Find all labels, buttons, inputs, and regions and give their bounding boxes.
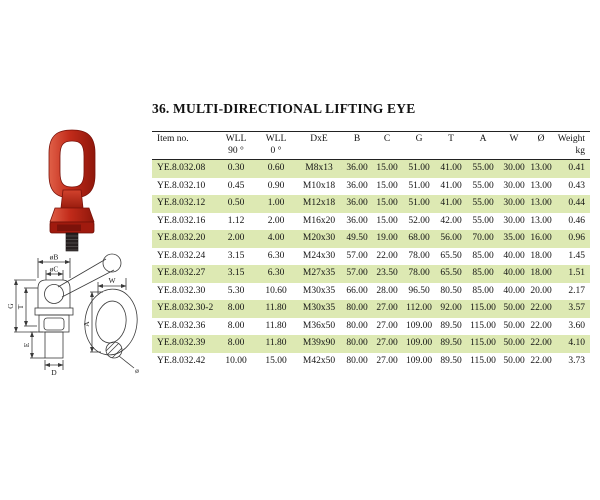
- cell-t: 80.50: [436, 283, 466, 301]
- col-header-a: A: [466, 132, 500, 160]
- table-row: YE.8.032.273.156.30M27x3557.0023.5078.00…: [152, 265, 590, 283]
- cell-c: 27.00: [372, 318, 402, 336]
- table-row: YE.8.032.4210.0015.00M42x5080.0027.00109…: [152, 353, 590, 371]
- cell-wll-90: 8.00: [216, 335, 256, 353]
- cell-t: 92.00: [436, 300, 466, 318]
- cell-b: 36.00: [342, 178, 372, 196]
- cell-dxe: M20x30: [296, 230, 342, 248]
- dim-label-w: W: [108, 276, 116, 285]
- cell-wll-90: 1.12: [216, 213, 256, 231]
- cell-w: 30.00: [500, 178, 528, 196]
- cell-weight: 0.44: [554, 195, 590, 213]
- cell-w: 30.00: [500, 195, 528, 213]
- flange: [35, 308, 73, 315]
- pivot-circle: [45, 285, 64, 304]
- cell-wll-90: 2.00: [216, 230, 256, 248]
- cell-t: 89.50: [436, 318, 466, 336]
- cell-wll-90: 3.15: [216, 265, 256, 283]
- bolt-shank: [45, 332, 63, 358]
- cell-wll-0: 6.30: [256, 248, 296, 266]
- col-header-g: G: [402, 132, 436, 160]
- cell-wll-90: 10.00: [216, 353, 256, 371]
- col-header-item-no: Item no.: [152, 132, 216, 160]
- cell-a: 55.00: [466, 160, 500, 178]
- cell-b: 57.00: [342, 248, 372, 266]
- cell-a: 55.00: [466, 178, 500, 196]
- cell-g: 112.00: [402, 300, 436, 318]
- cell-t: 65.50: [436, 248, 466, 266]
- ring-inner: [93, 299, 129, 345]
- cell-item-no: YE.8.032.24: [152, 248, 216, 266]
- cell-t: 42.00: [436, 213, 466, 231]
- cell-b: 36.00: [342, 195, 372, 213]
- cell-dxe: M42x50: [296, 353, 342, 371]
- lifting-ring: [49, 130, 95, 198]
- cell-a: 85.00: [466, 283, 500, 301]
- table-row: YE.8.032.100.450.90M10x1836.0015.0051.00…: [152, 178, 590, 196]
- cell-t: 41.00: [436, 195, 466, 213]
- cell-w: 50.00: [500, 353, 528, 371]
- cell-dia: 18.00: [528, 248, 554, 266]
- dimension-drawing: øB øC G T E D W A ø: [8, 250, 158, 398]
- cell-dia: 13.00: [528, 178, 554, 196]
- cell-item-no: YE.8.032.27: [152, 265, 216, 283]
- cell-weight: 0.41: [554, 160, 590, 178]
- col-header-weight: Weightkg: [554, 132, 590, 160]
- cell-weight: 0.96: [554, 230, 590, 248]
- cell-c: 23.50: [372, 265, 402, 283]
- cell-t: 89.50: [436, 335, 466, 353]
- cell-wll-0: 11.80: [256, 318, 296, 336]
- cell-w: 50.00: [500, 335, 528, 353]
- cell-dia: 20.00: [528, 283, 554, 301]
- cell-wll-0: 11.80: [256, 300, 296, 318]
- cell-dia: 13.00: [528, 160, 554, 178]
- cell-weight: 0.46: [554, 213, 590, 231]
- cell-b: 80.00: [342, 300, 372, 318]
- cell-item-no: YE.8.032.30: [152, 283, 216, 301]
- cell-wll-0: 10.60: [256, 283, 296, 301]
- spec-table-container: Item no.WLL90 °WLL0 °DxEBCGTAWØWeightkg …: [152, 131, 590, 370]
- cell-dxe: M36x50: [296, 318, 342, 336]
- dim-label-g: G: [8, 303, 15, 309]
- cell-item-no: YE.8.032.10: [152, 178, 216, 196]
- dim-label-d: D: [51, 368, 57, 377]
- table-row: YE.8.032.202.004.00M20x3049.5019.0068.00…: [152, 230, 590, 248]
- table-row: YE.8.032.398.0011.80M39x9080.0027.00109.…: [152, 335, 590, 353]
- cell-dxe: M24x30: [296, 248, 342, 266]
- cell-dxe: M27x35: [296, 265, 342, 283]
- cell-w: 50.00: [500, 300, 528, 318]
- cell-weight: 2.17: [554, 283, 590, 301]
- cell-c: 27.00: [372, 335, 402, 353]
- cell-b: 36.00: [342, 160, 372, 178]
- product-photo: [36, 120, 141, 252]
- cell-w: 30.00: [500, 160, 528, 178]
- cell-weight: 1.45: [554, 248, 590, 266]
- cell-a: 85.00: [466, 265, 500, 283]
- cell-b: 80.00: [342, 353, 372, 371]
- cell-item-no: YE.8.032.16: [152, 213, 216, 231]
- cell-t: 41.00: [436, 160, 466, 178]
- cell-b: 49.50: [342, 230, 372, 248]
- cell-wll-90: 8.00: [216, 300, 256, 318]
- cell-w: 30.00: [500, 213, 528, 231]
- cell-a: 55.00: [466, 195, 500, 213]
- lever-edge-top: [58, 259, 106, 287]
- cell-t: 56.00: [436, 230, 466, 248]
- cell-w: 35.00: [500, 230, 528, 248]
- cell-t: 89.50: [436, 353, 466, 371]
- cell-wll-90: 8.00: [216, 318, 256, 336]
- cell-dxe: M12x18: [296, 195, 342, 213]
- cell-b: 80.00: [342, 335, 372, 353]
- dia-leader-line: [119, 356, 134, 368]
- cell-wll-90: 0.30: [216, 160, 256, 178]
- col-header-dxe: DxE: [296, 132, 342, 160]
- cell-weight: 0.43: [554, 178, 590, 196]
- cell-item-no: YE.8.032.20: [152, 230, 216, 248]
- cell-a: 115.00: [466, 300, 500, 318]
- cell-a: 115.00: [466, 353, 500, 371]
- table-row: YE.8.032.305.3010.60M30x3566.0028.0096.5…: [152, 283, 590, 301]
- cell-a: 70.00: [466, 230, 500, 248]
- cell-b: 57.00: [342, 265, 372, 283]
- cell-g: 109.00: [402, 353, 436, 371]
- cell-w: 40.00: [500, 283, 528, 301]
- cell-dia: 22.00: [528, 300, 554, 318]
- cell-b: 80.00: [342, 318, 372, 336]
- cell-weight: 4.10: [554, 335, 590, 353]
- cell-dxe: M30x35: [296, 283, 342, 301]
- cell-weight: 1.51: [554, 265, 590, 283]
- body: [39, 315, 69, 332]
- page-title: 36. MULTI-DIRECTIONAL LIFTING EYE: [152, 101, 415, 117]
- cell-item-no: YE.8.032.39: [152, 335, 216, 353]
- table-row: YE.8.032.120.501.00M12x1836.0015.0051.00…: [152, 195, 590, 213]
- cell-wll-90: 0.50: [216, 195, 256, 213]
- cell-dxe: M8x13: [296, 160, 342, 178]
- cell-c: 27.00: [372, 353, 402, 371]
- cell-dia: 13.00: [528, 195, 554, 213]
- col-header-wll-0: WLL0 °: [256, 132, 296, 160]
- body-window: [44, 318, 64, 330]
- dim-label-e: E: [22, 342, 31, 347]
- cell-item-no: YE.8.032.42: [152, 353, 216, 371]
- cell-g: 68.00: [402, 230, 436, 248]
- base-label-plate: [57, 225, 81, 232]
- cell-dxe: M30x35: [296, 300, 342, 318]
- cell-b: 66.00: [342, 283, 372, 301]
- cell-g: 109.00: [402, 335, 436, 353]
- cell-g: 96.50: [402, 283, 436, 301]
- cell-c: 28.00: [372, 283, 402, 301]
- col-header-dia: Ø: [528, 132, 554, 160]
- cell-wll-0: 11.80: [256, 335, 296, 353]
- spec-table: Item no.WLL90 °WLL0 °DxEBCGTAWØWeightkg …: [152, 131, 590, 370]
- cell-item-no: YE.8.032.12: [152, 195, 216, 213]
- cell-weight: 3.60: [554, 318, 590, 336]
- cell-item-no: YE.8.032.36: [152, 318, 216, 336]
- cell-g: 78.00: [402, 248, 436, 266]
- cell-dxe: M39x90: [296, 335, 342, 353]
- cell-c: 15.00: [372, 195, 402, 213]
- col-header-w: W: [500, 132, 528, 160]
- cell-b: 36.00: [342, 213, 372, 231]
- table-row: YE.8.032.161.122.00M16x2036.0015.0052.00…: [152, 213, 590, 231]
- cell-wll-0: 4.00: [256, 230, 296, 248]
- cell-wll-0: 15.00: [256, 353, 296, 371]
- cell-dia: 22.00: [528, 335, 554, 353]
- cell-g: 109.00: [402, 318, 436, 336]
- catalog-page: 36. MULTI-DIRECTIONAL LIFTING EYE: [0, 0, 600, 500]
- cell-wll-90: 0.45: [216, 178, 256, 196]
- cell-g: 51.00: [402, 160, 436, 178]
- cell-c: 15.00: [372, 160, 402, 178]
- cell-dia: 13.00: [528, 213, 554, 231]
- cell-g: 52.00: [402, 213, 436, 231]
- cell-w: 50.00: [500, 318, 528, 336]
- cell-g: 51.00: [402, 195, 436, 213]
- table-row: YE.8.032.243.156.30M24x3057.0022.0078.00…: [152, 248, 590, 266]
- cell-dia: 18.00: [528, 265, 554, 283]
- swivel-clevis: [61, 190, 83, 208]
- cell-c: 15.00: [372, 178, 402, 196]
- cell-item-no: YE.8.032.08: [152, 160, 216, 178]
- cell-wll-0: 0.60: [256, 160, 296, 178]
- cell-wll-90: 5.30: [216, 283, 256, 301]
- cell-wll-0: 6.30: [256, 265, 296, 283]
- lever-end-circle: [103, 254, 121, 272]
- dim-label-ob: øB: [50, 253, 59, 262]
- cell-weight: 3.73: [554, 353, 590, 371]
- cell-item-no: YE.8.032.30-2: [152, 300, 216, 318]
- cell-dia: 22.00: [528, 353, 554, 371]
- dim-label-oc: øC: [50, 265, 59, 274]
- cell-wll-0: 1.00: [256, 195, 296, 213]
- col-header-wll-90: WLL90 °: [216, 132, 256, 160]
- cell-a: 115.00: [466, 335, 500, 353]
- table-body: YE.8.032.080.300.60M8x1336.0015.0051.004…: [152, 160, 590, 371]
- cell-c: 22.00: [372, 248, 402, 266]
- cell-dia: 16.00: [528, 230, 554, 248]
- col-header-t: T: [436, 132, 466, 160]
- table-header-row: Item no.WLL90 °WLL0 °DxEBCGTAWØWeightkg: [152, 132, 590, 160]
- cell-dia: 22.00: [528, 318, 554, 336]
- col-header-b: B: [342, 132, 372, 160]
- dim-label-dia: ø: [135, 366, 139, 375]
- cell-g: 78.00: [402, 265, 436, 283]
- cell-a: 85.00: [466, 248, 500, 266]
- cell-dxe: M16x20: [296, 213, 342, 231]
- cell-t: 65.50: [436, 265, 466, 283]
- cell-t: 41.00: [436, 178, 466, 196]
- cell-wll-90: 3.15: [216, 248, 256, 266]
- col-header-c: C: [372, 132, 402, 160]
- cell-a: 55.00: [466, 213, 500, 231]
- cell-c: 15.00: [372, 213, 402, 231]
- cell-c: 27.00: [372, 300, 402, 318]
- dim-label-a: A: [82, 321, 91, 327]
- dim-label-t: T: [16, 304, 25, 309]
- cell-w: 40.00: [500, 248, 528, 266]
- table-row: YE.8.032.080.300.60M8x1336.0015.0051.004…: [152, 160, 590, 178]
- swivel-base: [50, 208, 94, 222]
- table-row: YE.8.032.30-28.0011.80M30x3580.0027.0011…: [152, 300, 590, 318]
- cell-weight: 3.57: [554, 300, 590, 318]
- cell-a: 115.00: [466, 318, 500, 336]
- table-row: YE.8.032.368.0011.80M36x5080.0027.00109.…: [152, 318, 590, 336]
- cell-dxe: M10x18: [296, 178, 342, 196]
- cell-wll-0: 2.00: [256, 213, 296, 231]
- cell-wll-0: 0.90: [256, 178, 296, 196]
- cell-c: 19.00: [372, 230, 402, 248]
- cell-w: 40.00: [500, 265, 528, 283]
- cell-g: 51.00: [402, 178, 436, 196]
